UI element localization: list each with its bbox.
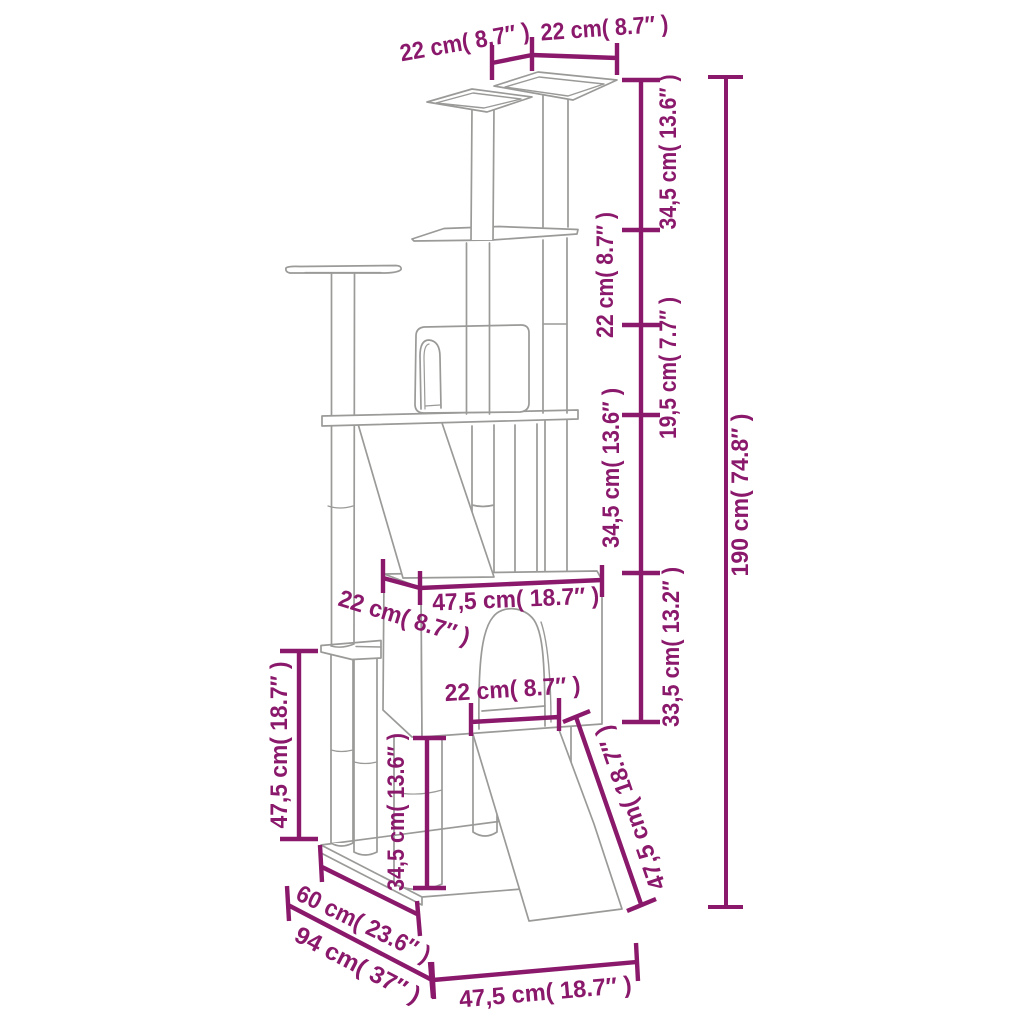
svg-text:22 cm( 8.7″ ): 22 cm( 8.7″ ) bbox=[592, 212, 619, 338]
svg-text:33,5 cm( 13.2″ ): 33,5 cm( 13.2″ ) bbox=[658, 567, 685, 727]
svg-text:34,5 cm( 13.6″ ): 34,5 cm( 13.6″ ) bbox=[598, 388, 625, 548]
svg-text:34,5 cm( 13.6″ ): 34,5 cm( 13.6″ ) bbox=[383, 733, 410, 891]
svg-text:19,5 cm( 7.7″ ): 19,5 cm( 7.7″ ) bbox=[655, 297, 682, 439]
svg-text:190 cm( 74.8″ ): 190 cm( 74.8″ ) bbox=[727, 414, 754, 577]
svg-text:34,5 cm( 13.6″ ): 34,5 cm( 13.6″ ) bbox=[655, 75, 682, 230]
svg-text:47,5 cm( 18.7″ ): 47,5 cm( 18.7″ ) bbox=[266, 662, 293, 829]
